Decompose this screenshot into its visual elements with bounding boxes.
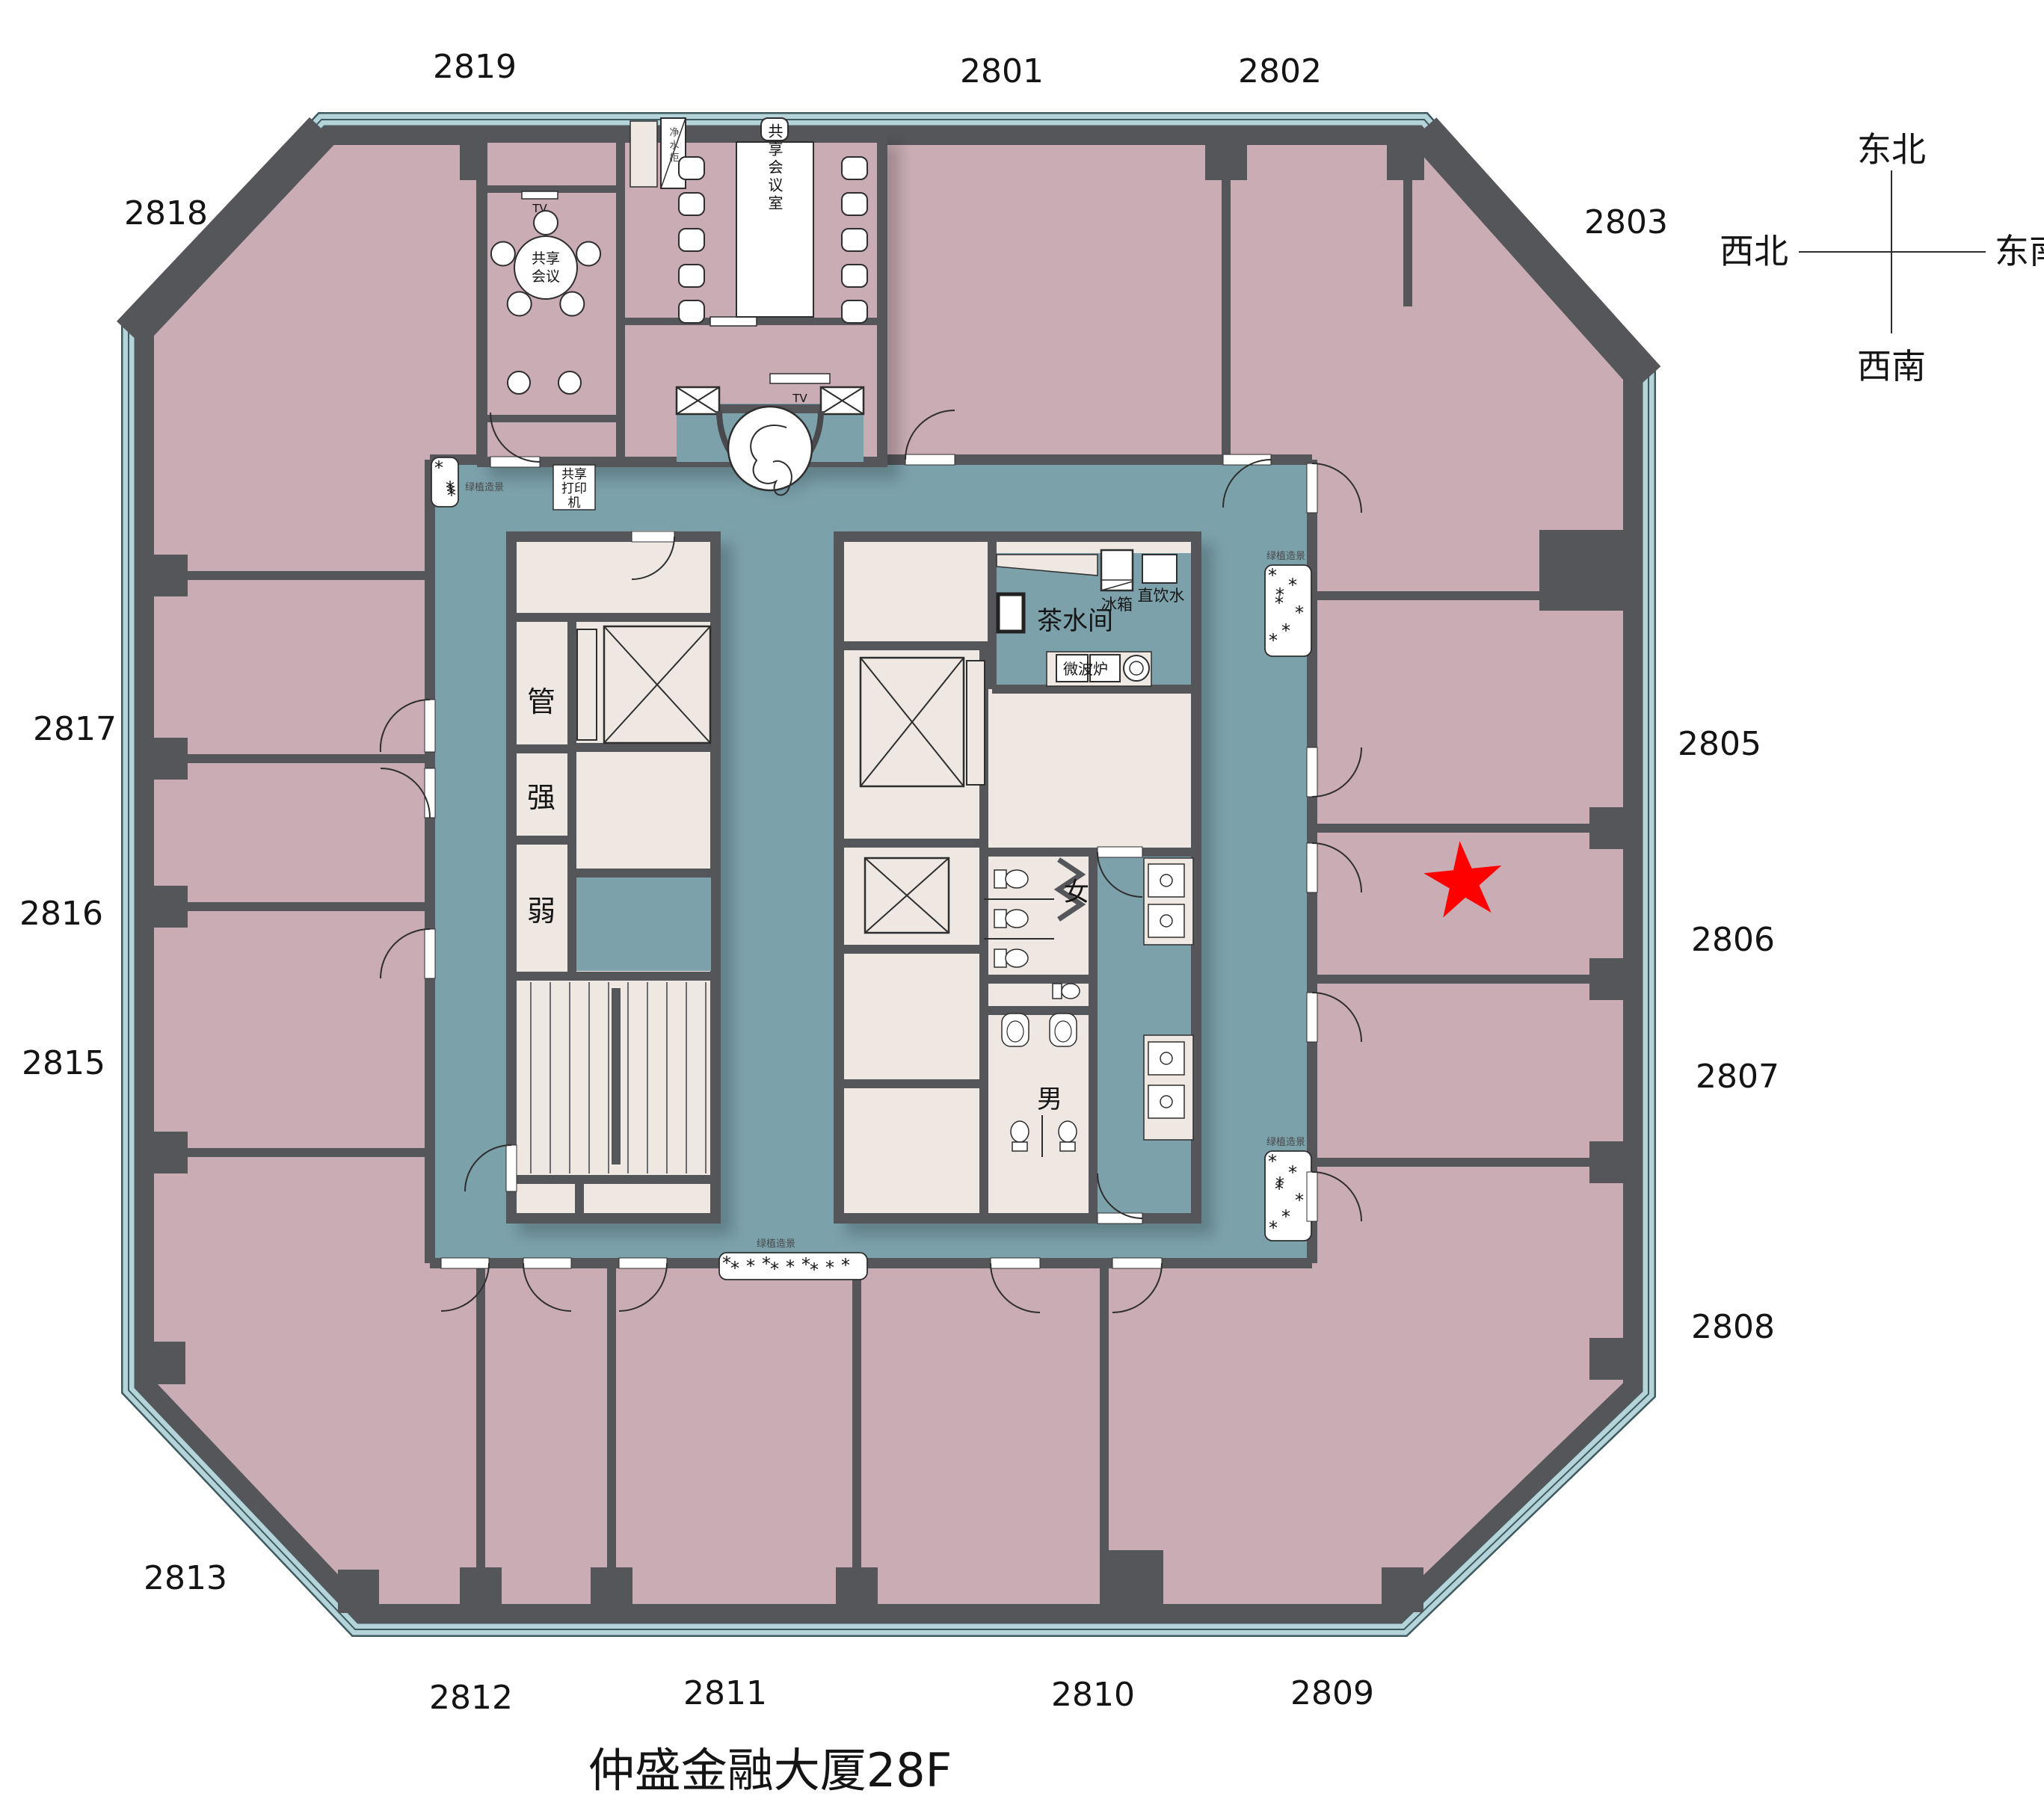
room-number-2811: 2811 (683, 1674, 767, 1712)
chair (508, 292, 532, 316)
plant-icon: * (1295, 1190, 1304, 1211)
svg-text:机: 机 (568, 496, 581, 510)
svg-text:共享: 共享 (561, 467, 587, 482)
duct-shaft-label: 管 (527, 685, 555, 718)
door-gap (1307, 747, 1317, 797)
toilet-icon (1059, 1121, 1077, 1142)
room-number-2816: 2816 (19, 895, 103, 933)
room-number-2808: 2808 (1691, 1308, 1775, 1346)
toilet-icon (994, 949, 1006, 967)
planter-caption: 绿植造景 (465, 482, 504, 493)
door-gap (632, 531, 674, 542)
door-gap (506, 1145, 517, 1191)
door-gap (1307, 1172, 1317, 1221)
floor-plan-svg: TV 共享 会议 净水柜 共享会议室 TV 共享 打印 机 (0, 0, 2044, 1820)
pantry-door (998, 594, 1023, 632)
room-number-2810: 2810 (1051, 1676, 1135, 1714)
door-gap (1307, 463, 1317, 513)
plant-icon: * (1269, 630, 1278, 651)
toilet-icon (1006, 949, 1028, 967)
room-number-2802: 2802 (1238, 52, 1322, 90)
room-number-2812: 2812 (429, 1679, 513, 1717)
sink-icon (1148, 1042, 1184, 1075)
toilet-icon (1053, 984, 1062, 999)
door-gap (425, 929, 435, 978)
plant-icon: * (841, 1255, 850, 1276)
accessible-wc (1053, 984, 1080, 999)
direct-water-label: 直饮水 (1138, 587, 1185, 605)
room-number-2803: 2803 (1584, 203, 1668, 241)
strong-power-label: 强 (527, 781, 555, 814)
plant-icon: * (1268, 1151, 1277, 1172)
toilet-icon (1006, 870, 1028, 888)
plant-icon: * (1275, 584, 1284, 605)
women-label: 女 (1064, 877, 1089, 907)
chair (576, 242, 600, 266)
plant-icon: * (1288, 1162, 1297, 1183)
plant-icon: * (446, 478, 455, 499)
plant-icon: * (1268, 565, 1277, 586)
meeting-room-label: 共享会议室 (766, 123, 784, 213)
room-number-2807: 2807 (1696, 1058, 1779, 1096)
svg-text:打印: 打印 (561, 481, 587, 496)
toilet-icon (994, 910, 1006, 928)
sink-icon (1124, 655, 1149, 681)
toilet-icon (1011, 1121, 1029, 1142)
chair (679, 300, 704, 323)
toilet-icon (994, 870, 1006, 888)
compass-ne: 东北 (1857, 129, 1926, 170)
compass-nw: 西北 (1720, 231, 1788, 271)
chair (679, 157, 704, 179)
compass-se: 东南 (1995, 231, 2044, 271)
chair (558, 371, 581, 394)
door-gap (1112, 1258, 1162, 1268)
chair (679, 265, 704, 287)
water-cabinet-label: 净水柜 (668, 127, 680, 165)
elevator-shaft-icon (577, 626, 710, 743)
plant-icon: * (730, 1258, 739, 1279)
plant-icon: * (746, 1256, 755, 1277)
door-gap (991, 1258, 1040, 1268)
core-left: 管 强 弱 (511, 531, 715, 1218)
chair (842, 300, 867, 323)
door-gap (1307, 843, 1317, 892)
door-gap (905, 454, 955, 465)
door-gap (523, 1258, 571, 1268)
compass-sw: 西南 (1857, 346, 1926, 386)
men-label: 男 (1037, 1085, 1062, 1114)
toilet-icon (1012, 1142, 1027, 1151)
planter-caption: 绿植造景 (757, 1238, 795, 1250)
tv-cabinet (522, 191, 558, 199)
door-gap (425, 700, 435, 752)
shared-printer: 共享 打印 机 (553, 465, 595, 510)
chair (491, 242, 515, 266)
room-number-2809: 2809 (1290, 1674, 1374, 1712)
plant-icon: * (825, 1257, 834, 1278)
tv-label: TV (792, 392, 807, 405)
room-number-2813: 2813 (144, 1559, 227, 1597)
room-number-2817: 2817 (33, 710, 117, 748)
door-gap (619, 1258, 667, 1268)
sink-icon (1148, 904, 1184, 937)
plant-icon: * (1295, 602, 1304, 623)
plant-icon: * (1281, 620, 1290, 641)
core-right: 冰箱 直饮水 茶水间 微波炉 女 男 (839, 537, 1196, 1218)
plant-icon: * (1288, 575, 1297, 596)
plant-icon: * (770, 1259, 779, 1280)
chair (560, 292, 584, 316)
plant-icon: * (434, 457, 443, 478)
plant-icon: * (1275, 1173, 1284, 1194)
round-meeting-label: 会议 (532, 268, 560, 285)
chair (842, 193, 867, 215)
chair (679, 193, 704, 215)
room-number-2815: 2815 (22, 1044, 105, 1082)
page-title: 仲盛金融大厦28F (588, 1743, 952, 1798)
room-number-2805: 2805 (1678, 725, 1761, 763)
door-gap (1098, 847, 1142, 857)
plant-icon: * (1269, 1218, 1278, 1238)
round-meeting-label: 共享 (532, 250, 560, 267)
fridge-icon (1101, 550, 1133, 590)
plant-icon: * (810, 1259, 819, 1280)
chair (679, 229, 704, 251)
chair (842, 265, 867, 287)
sink-icon (1148, 1085, 1184, 1118)
planter-caption: 绿植造景 (1266, 551, 1305, 562)
stair-rail (612, 988, 621, 1165)
toilet-icon (1062, 984, 1080, 999)
chair (534, 211, 558, 235)
compass: 东北 西北 东南 西南 (1720, 129, 2044, 386)
room-number-2801: 2801 (960, 52, 1044, 90)
toilet-icon (1060, 1142, 1075, 1151)
water-dispenser-icon (1142, 555, 1177, 583)
toilet-icon (1006, 910, 1028, 928)
pantry-label: 茶水间 (1037, 606, 1113, 636)
plant-icon: * (786, 1256, 795, 1277)
chair (842, 229, 867, 251)
chair (842, 157, 867, 179)
tv-cabinet (770, 374, 830, 383)
chair (508, 371, 530, 394)
planter-caption: 绿植造景 (1266, 1137, 1305, 1148)
door-gap (441, 1258, 489, 1268)
microwave-label: 微波炉 (1063, 660, 1108, 678)
sink-icon (1148, 864, 1184, 897)
room-number-2806: 2806 (1691, 921, 1775, 959)
room-number-2818: 2818 (124, 194, 208, 232)
plant-icon: * (1281, 1206, 1290, 1227)
room-number-2819: 2819 (433, 48, 517, 86)
door-gap (1307, 993, 1317, 1042)
round-table (514, 236, 577, 299)
weak-power-label: 弱 (527, 895, 555, 928)
